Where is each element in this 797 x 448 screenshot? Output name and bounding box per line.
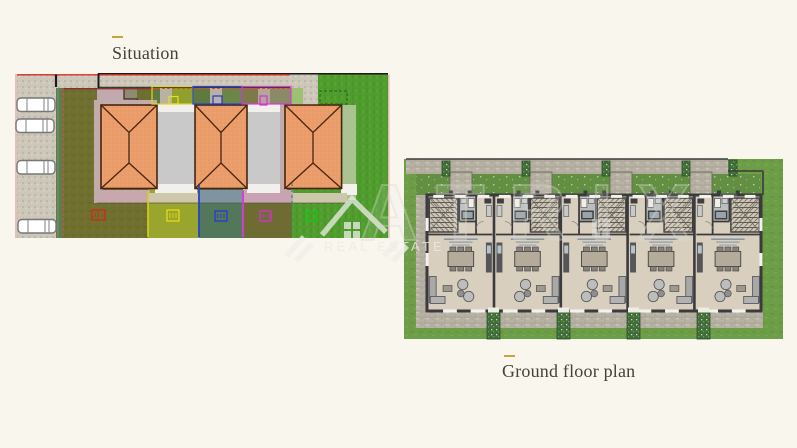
svg-text:ATRIX: ATRIX xyxy=(360,170,714,257)
